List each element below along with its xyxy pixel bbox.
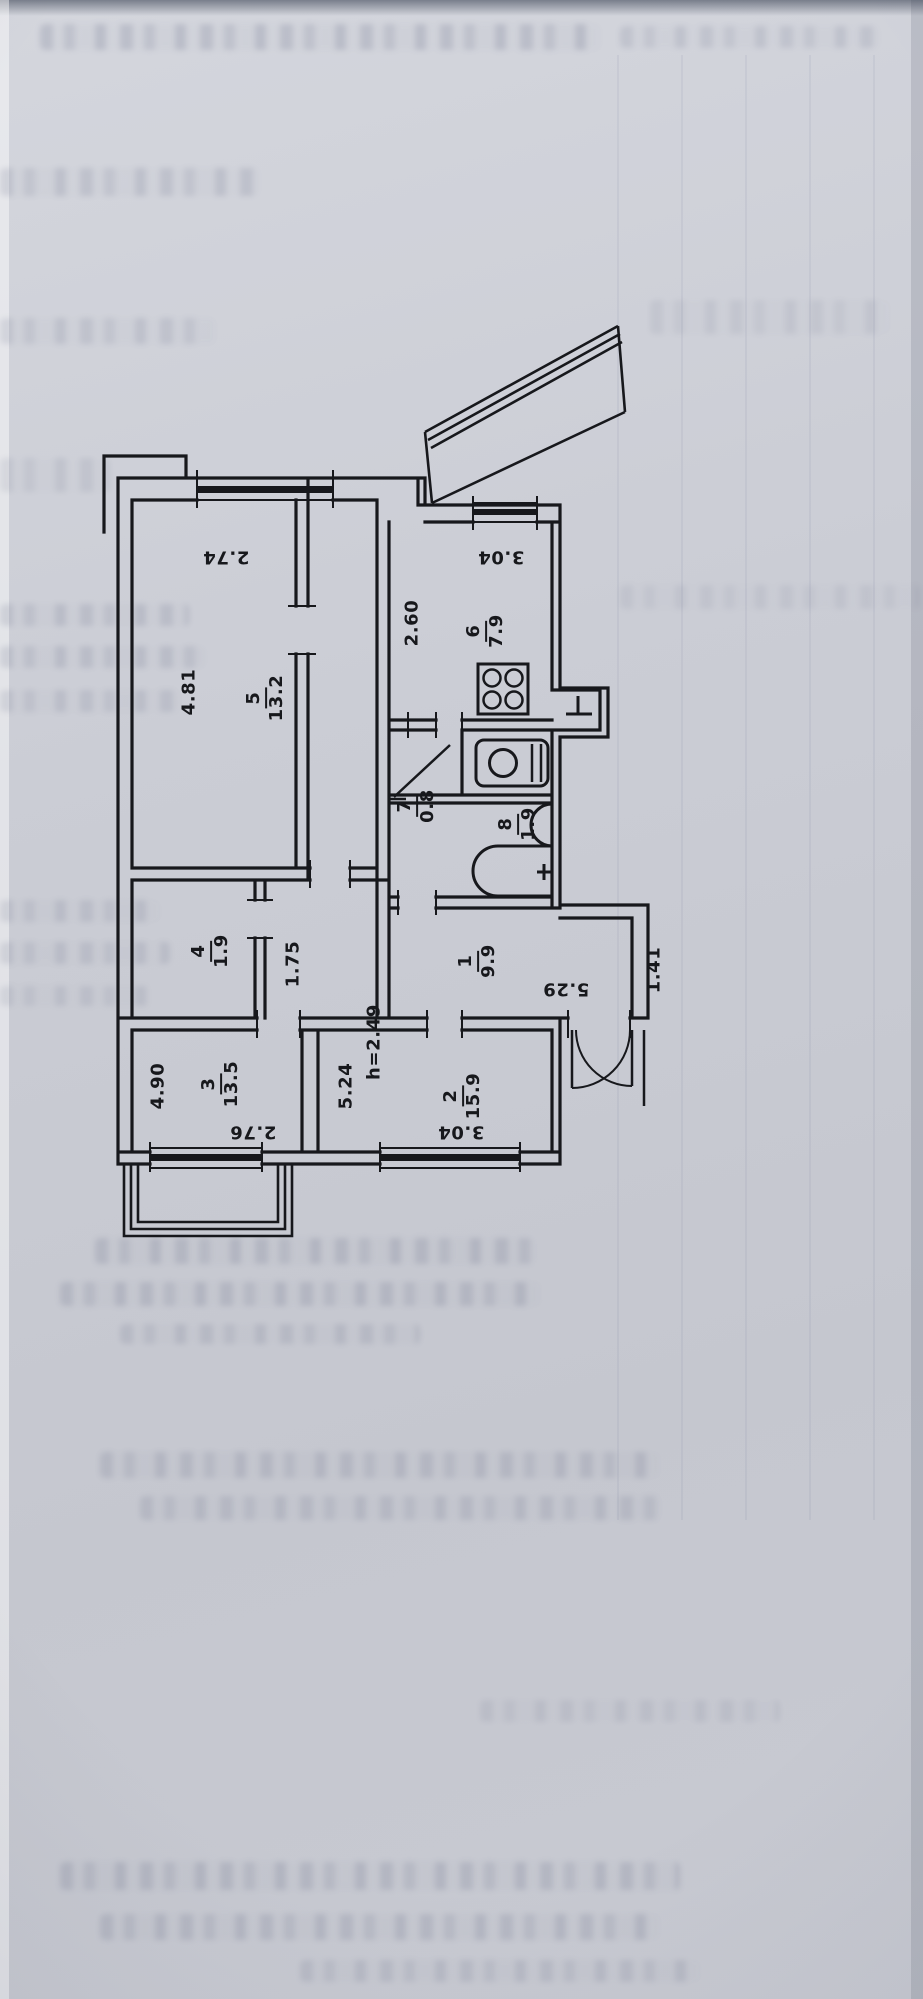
dim-entry-nook-width: 1.41 bbox=[646, 947, 665, 994]
room-3-number: 3 bbox=[200, 1073, 222, 1094]
dim-room2-width: 3.04 bbox=[438, 1122, 485, 1141]
floor-plan-drawing: 5 13.2 6 7.9 7 0.8 8 1.9 1 9.9 4 1.9 3 1… bbox=[0, 0, 923, 1999]
dim-room2-depth: 5.24 bbox=[338, 1063, 357, 1110]
room-8-number: 8 bbox=[497, 813, 519, 834]
room-4-number: 4 bbox=[190, 940, 212, 961]
room-8-area: 1.9 bbox=[519, 807, 539, 841]
room-4-area: 1.9 bbox=[212, 934, 232, 968]
balcony-top bbox=[425, 326, 625, 503]
room-label-7: 7 0.8 bbox=[396, 789, 438, 823]
bathtub-icon bbox=[473, 846, 552, 896]
dim-room3-width: 2.76 bbox=[230, 1122, 277, 1141]
room-3-area: 13.5 bbox=[222, 1061, 242, 1108]
dim-kitchen-width: 2.60 bbox=[404, 600, 423, 647]
dim-hall-length: 5.29 bbox=[543, 979, 590, 998]
room-1-number: 1 bbox=[457, 950, 479, 971]
dim-room2-ceiling-height: h=2.49 bbox=[366, 1004, 385, 1080]
dim-room3-depth: 4.90 bbox=[150, 1063, 169, 1110]
dim-corridor-width: 1.75 bbox=[285, 941, 304, 988]
room-2-area: 15.9 bbox=[464, 1073, 484, 1120]
floor-plan-photo: 5 13.2 6 7.9 7 0.8 8 1.9 1 9.9 4 1.9 3 1… bbox=[0, 0, 923, 1999]
kitchen-sink-icon bbox=[566, 696, 592, 714]
dim-room5-width: 2.74 bbox=[203, 547, 250, 566]
floor-plan-svg bbox=[0, 0, 923, 1999]
room-5-number: 5 bbox=[245, 687, 267, 708]
dim-room5-depth: 4.81 bbox=[181, 669, 200, 716]
room-label-1: 1 9.9 bbox=[457, 944, 499, 978]
dim-kitchen-window-width: 3.04 bbox=[478, 547, 525, 566]
room-label-8: 8 1.9 bbox=[497, 807, 539, 841]
balcony-bottom bbox=[124, 1164, 292, 1236]
room-label-6: 6 7.9 bbox=[465, 614, 507, 648]
entrance-door-swing bbox=[572, 1030, 644, 1106]
room-7-area: 0.8 bbox=[418, 789, 438, 823]
stove-icon bbox=[478, 664, 528, 714]
room-6-area: 7.9 bbox=[487, 614, 507, 648]
room-1-area: 9.9 bbox=[479, 944, 499, 978]
room-label-3: 3 13.5 bbox=[200, 1061, 242, 1108]
room-label-2: 2 15.9 bbox=[442, 1073, 484, 1120]
toilet-icon bbox=[476, 740, 548, 786]
room-label-5: 5 13.2 bbox=[245, 675, 287, 722]
room-label-4: 4 1.9 bbox=[190, 934, 232, 968]
room-6-number: 6 bbox=[465, 620, 487, 641]
room-7-number: 7 bbox=[396, 795, 418, 816]
room-2-number: 2 bbox=[442, 1085, 464, 1106]
room-5-area: 13.2 bbox=[267, 675, 287, 722]
